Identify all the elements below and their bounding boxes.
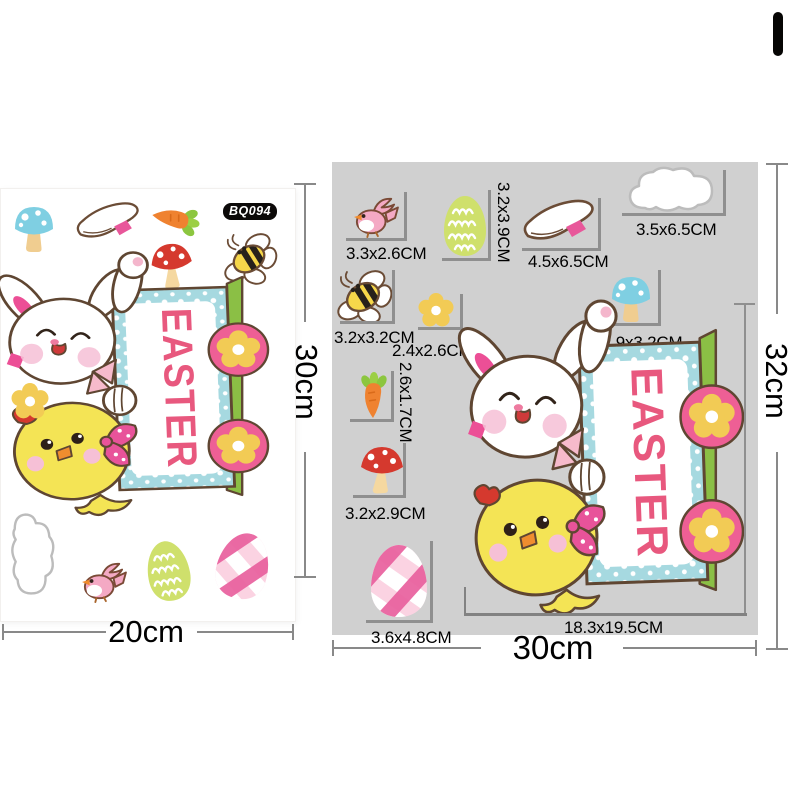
carrot-icon bbox=[148, 197, 202, 241]
size-bracket bbox=[340, 321, 395, 324]
cloud-icon bbox=[8, 506, 58, 602]
panel-width-label: 30cm bbox=[493, 629, 613, 667]
decorative-black-bar bbox=[773, 12, 783, 56]
size-bracket bbox=[346, 238, 407, 241]
size-bracket bbox=[734, 303, 755, 305]
carrot-icon bbox=[356, 373, 390, 419]
bird-icon bbox=[350, 196, 400, 238]
size-bracket bbox=[488, 190, 491, 261]
size-bracket bbox=[598, 198, 601, 251]
size-bracket bbox=[418, 327, 463, 330]
size-bracket bbox=[442, 258, 491, 261]
bird-icon bbox=[77, 561, 129, 603]
product-size-diagram: BQ094 20cm 30cm 3.3x2.6CM 3.2x3.9CM bbox=[0, 0, 800, 800]
size-bracket bbox=[403, 443, 406, 498]
bee-icon bbox=[336, 270, 390, 322]
product-code-badge: BQ094 bbox=[223, 203, 277, 220]
size-bracket bbox=[353, 495, 406, 498]
flower-icon bbox=[11, 383, 49, 421]
size-bracket bbox=[464, 587, 466, 613]
cloud-icon bbox=[622, 163, 720, 215]
flower-icon bbox=[418, 293, 454, 329]
size-bracket bbox=[404, 192, 407, 240]
size-label-green-egg: 3.2x3.9CM bbox=[493, 182, 513, 266]
green-egg-icon bbox=[442, 194, 488, 258]
sheet-height-label: 30cm bbox=[288, 335, 324, 429]
size-bracket bbox=[723, 170, 726, 216]
size-label-cloud: 3.5x6.5CM bbox=[636, 220, 716, 240]
size-label-carrot: 2.6x1.7CM bbox=[395, 362, 415, 440]
size-bracket bbox=[464, 613, 747, 616]
sticker-sheet-panel: BQ094 bbox=[0, 188, 296, 622]
slipper-icon bbox=[520, 196, 598, 248]
size-bracket bbox=[744, 304, 746, 613]
size-bracket bbox=[522, 248, 601, 251]
sheet-width-label: 20cm bbox=[96, 614, 196, 650]
size-bracket bbox=[430, 541, 433, 623]
green-egg-icon bbox=[140, 535, 197, 606]
size-label-slipper: 4.5x6.5CM bbox=[528, 252, 608, 272]
plaid-egg-icon bbox=[207, 525, 278, 606]
size-bracket bbox=[366, 620, 433, 623]
size-bracket bbox=[622, 213, 726, 216]
size-bracket bbox=[391, 371, 394, 422]
size-bracket bbox=[392, 270, 395, 324]
blue-mushroom-icon bbox=[13, 203, 55, 253]
easter-bunny-sign-art bbox=[462, 304, 744, 616]
slipper-icon bbox=[73, 199, 143, 245]
size-bracket bbox=[350, 419, 394, 422]
plaid-egg-icon bbox=[369, 543, 429, 619]
size-label-red-mushroom: 3.2x2.9CM bbox=[345, 504, 425, 524]
red-mushroom-icon bbox=[359, 444, 405, 496]
sticker-sizes-panel: 3.3x2.6CM 3.2x3.9CM 4.5x6.5CM 3.5x6.5CM … bbox=[332, 162, 758, 635]
size-label-bird: 3.3x2.6CM bbox=[346, 244, 426, 264]
size-label-plaid-egg: 3.6x4.8CM bbox=[371, 628, 451, 648]
panel-height-label: 32cm bbox=[758, 334, 794, 428]
